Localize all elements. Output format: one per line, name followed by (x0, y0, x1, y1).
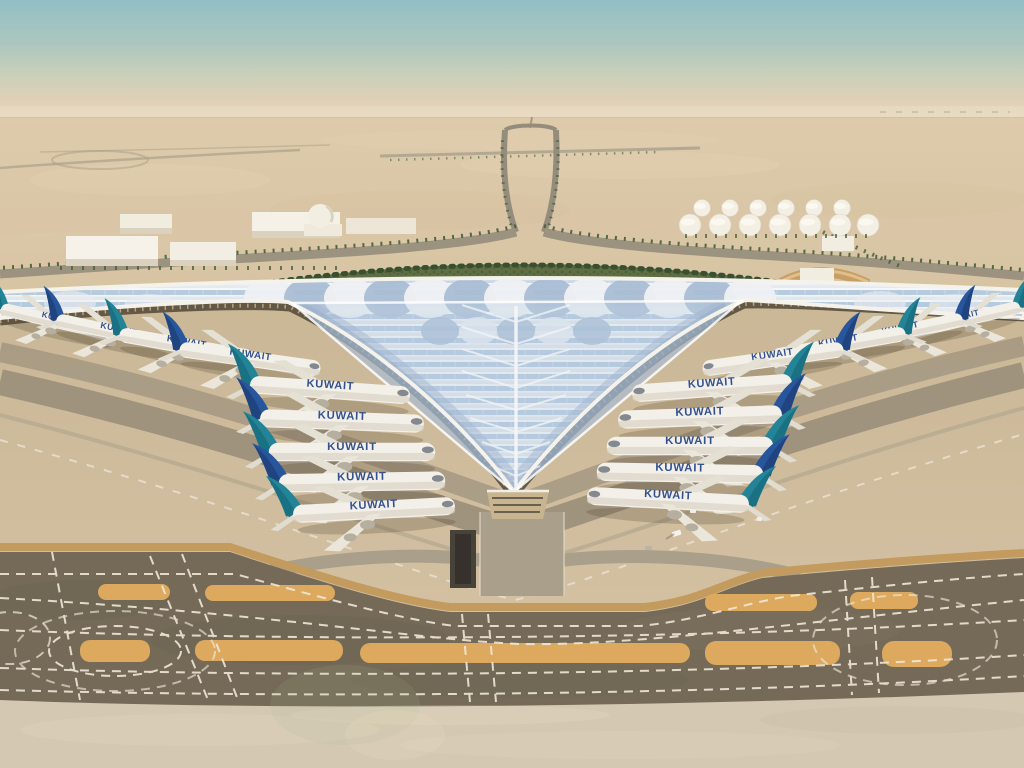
atmosphere-overlay (0, 0, 1024, 768)
airport-rendering-canvas: Aerial architectural rendering of a tref… (0, 0, 1024, 768)
airport-rendering: Aerial architectural rendering of a tref… (0, 0, 1024, 768)
